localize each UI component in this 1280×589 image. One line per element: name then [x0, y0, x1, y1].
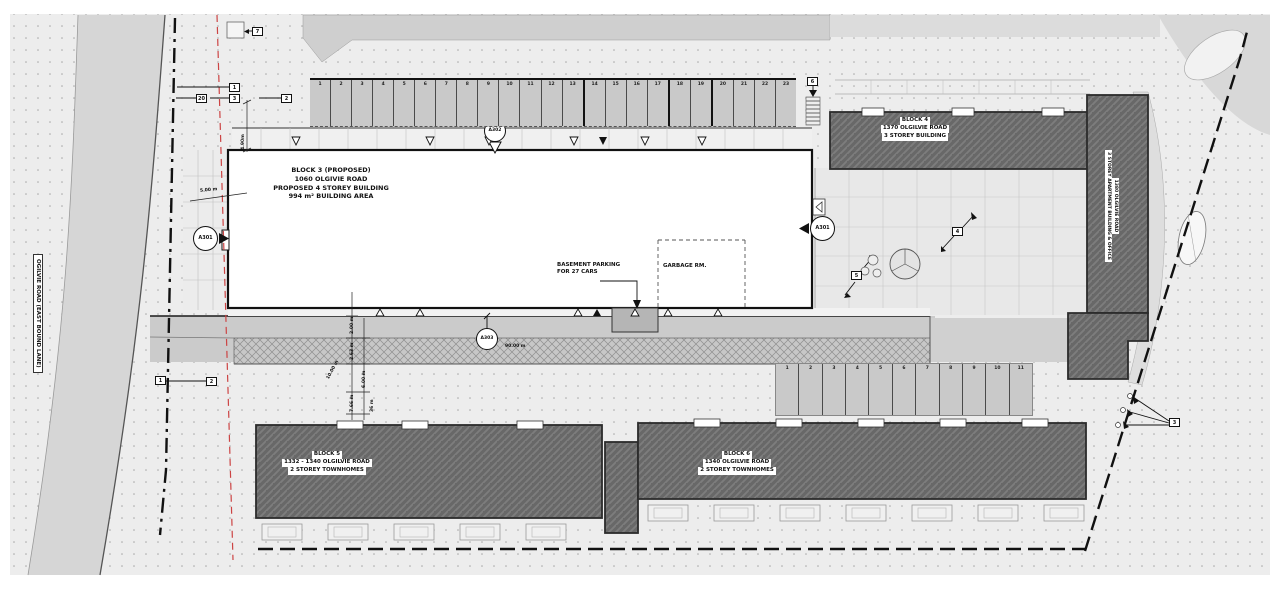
parking-stall: 23: [776, 80, 796, 126]
parking-stall: 12: [542, 80, 563, 126]
parking-stall: 2: [799, 364, 822, 415]
parking-stall: 22: [755, 80, 776, 126]
stall-number: 12: [548, 82, 554, 87]
stall-number: 3: [361, 82, 364, 87]
stall-number: 13: [569, 82, 575, 87]
parking-stall: 4: [373, 80, 394, 126]
stall-number: 8: [949, 366, 952, 371]
stall-number: 5: [879, 366, 882, 371]
stall-number: 5: [403, 82, 406, 87]
garbage-room-note: GARBAGE RM.: [663, 263, 706, 270]
site-plan: OGILVIE ROAD (EAST BOUND LANE) BLOCK 3 (…: [0, 0, 1280, 589]
parking-stall: 11: [520, 80, 541, 126]
stall-number: 4: [382, 82, 385, 87]
stall-number: 19: [698, 82, 704, 87]
parking-stall: 6: [893, 364, 916, 415]
keynote-edge-2: 2: [206, 377, 217, 386]
parking-stall: 20: [713, 80, 734, 126]
dimension-200: 2.00 m: [350, 317, 355, 334]
keynote-edge-1: 1: [155, 376, 166, 385]
keynote-6: 6: [807, 77, 818, 86]
parking-row-top: 1 2 3 4 5 6 7 8 9 10 11 12 13 14 15 16 1…: [310, 78, 796, 127]
parking-stall: 1: [776, 364, 799, 415]
stall-number: 2: [809, 366, 812, 371]
stall-number: 2: [340, 82, 343, 87]
stall-number: 23: [783, 82, 789, 87]
parking-stall: 9: [963, 364, 986, 415]
stall-number: 18: [677, 82, 683, 87]
keynote-boundary-3: 3: [1169, 418, 1180, 427]
stall-number: 1: [318, 82, 321, 87]
stall-number: 9: [487, 82, 490, 87]
dimension-36: 36 m: [370, 399, 375, 412]
block6-line1: BLOCK 6: [722, 451, 752, 459]
parking-stall: 15: [606, 80, 627, 126]
stall-number: 4: [856, 366, 859, 371]
parking-stall: 7: [436, 80, 457, 126]
block3-label: BLOCK 3 (PROPOSED) 1060 OLGIVIE ROAD PRO…: [236, 166, 426, 201]
keynote-20: 20: [196, 94, 207, 103]
parking-stall: 10: [986, 364, 1009, 415]
stall-number: 21: [741, 82, 747, 87]
block5-line1: BLOCK 5: [312, 451, 342, 459]
parking-stall: 18: [670, 80, 691, 126]
parking-stall: 16: [627, 80, 648, 126]
stall-number: 22: [762, 82, 768, 87]
parking-stall: 17: [648, 80, 670, 126]
parking-stall: 5: [394, 80, 415, 126]
stall-number: 11: [1018, 366, 1024, 371]
section-marker-a303: A303: [476, 328, 498, 350]
stall-number: 7: [926, 366, 929, 371]
section-marker-a301-left: A301: [193, 226, 218, 251]
parking-stall: 10: [499, 80, 520, 126]
parking-stall: 3: [352, 80, 373, 126]
stall-number: 15: [613, 82, 619, 87]
block6-line2: 1340 OLGILVIE ROAD: [703, 459, 771, 467]
parking-stall: 11: [1010, 364, 1032, 415]
parking-stall: 2: [331, 80, 352, 126]
street-label-wrapper: OGILVIE ROAD (EAST BOUND LANE): [52, 254, 171, 273]
stall-number: 1: [786, 366, 789, 371]
block3-line3: PROPOSED 4 STOREY BUILDING: [236, 184, 426, 193]
parking-stall: 5: [869, 364, 892, 415]
dimension-766: 7.66 m: [350, 395, 355, 412]
block4-line2: 1370 OLGILVIE ROAD: [881, 125, 949, 133]
parking-stall: 7: [916, 364, 939, 415]
stall-number: 11: [527, 82, 533, 87]
stall-number: 14: [592, 82, 598, 87]
block6-line3: 2 STOREY TOWNHOMES: [698, 467, 776, 475]
basement-note-line1: BASEMENT PARKING: [557, 262, 620, 269]
keynote-2: 2: [281, 94, 292, 103]
keynote-7: 7: [252, 27, 263, 36]
dimension-263: 2.63 m: [350, 343, 355, 360]
stall-number: 10: [506, 82, 512, 87]
stall-number: 20: [720, 82, 726, 87]
basement-note-line2: FOR 27 CARS: [557, 269, 620, 276]
stall-number: 8: [466, 82, 469, 87]
parking-stall: 14: [585, 80, 606, 126]
stall-number: 3: [832, 366, 835, 371]
keynote-4: 4: [952, 227, 963, 236]
parking-stall: 19: [691, 80, 713, 126]
block6-label: BLOCK 6 1340 OLGILVIE ROAD 2 STOREY TOWN…: [666, 451, 808, 475]
stall-number: 6: [424, 82, 427, 87]
east-building-line1: 1380 OLGILVIE ROAD: [1112, 178, 1119, 235]
keynote-3: 3: [229, 94, 240, 103]
block4-line3: 3 STOREY BUILDING: [882, 133, 948, 141]
block5-line3: 2 STOREY TOWNHOMES: [288, 467, 366, 475]
street-label: OGILVIE ROAD (EAST BOUND LANE): [33, 254, 43, 373]
block4-label: BLOCK 4 1370 OLGILVIE ROAD 3 STOREY BUIL…: [850, 117, 980, 141]
dimension-600: 6.00 m: [362, 371, 367, 388]
block3-line1: BLOCK 3 (PROPOSED): [236, 166, 426, 175]
parking-row-bottom: 1 2 3 4 5 6 7 8 9 10 11: [775, 363, 1033, 416]
stall-number: 10: [994, 366, 1000, 371]
keynote-5: 5: [851, 271, 862, 280]
parking-stall: 3: [823, 364, 846, 415]
block5-line2: 1332 - 1340 OLGILVIE ROAD: [282, 459, 372, 467]
keynote-1: 1: [229, 83, 240, 92]
stall-number: 16: [634, 82, 640, 87]
parking-stall: 13: [563, 80, 585, 126]
parking-stall: 8: [940, 364, 963, 415]
section-marker-a301-right: A301: [810, 216, 835, 241]
block4-line1: BLOCK 4: [900, 117, 930, 125]
parking-stall: 8: [457, 80, 478, 126]
parking-stall: 4: [846, 364, 869, 415]
stall-number: 7: [445, 82, 448, 87]
east-building-label-wrapper: 1380 OLGILVIE ROAD 3 STOREY APARTMENT BU…: [1119, 150, 1231, 164]
parking-stall: 21: [734, 80, 755, 126]
stall-number: 6: [902, 366, 905, 371]
stall-number: 9: [972, 366, 975, 371]
block3-line4: 994 m² BUILDING AREA: [236, 192, 426, 201]
parking-stall: 6: [415, 80, 436, 126]
stall-number: 17: [655, 82, 661, 87]
parking-stall: 1: [310, 80, 331, 126]
east-building-line2: 3 STOREY APARTMENT BUILDING & OFFICE: [1105, 150, 1112, 262]
dimension-490: 4.90m: [241, 134, 246, 150]
dimension-90: 90.00 m: [505, 344, 526, 349]
basement-parking-note: BASEMENT PARKING FOR 27 CARS: [557, 262, 620, 277]
block3-line2: 1060 OLGIVIE ROAD: [236, 175, 426, 184]
parking-stall: 9: [478, 80, 499, 126]
block5-label: BLOCK 5 1332 - 1340 OLGILVIE ROAD 2 STOR…: [256, 451, 398, 475]
